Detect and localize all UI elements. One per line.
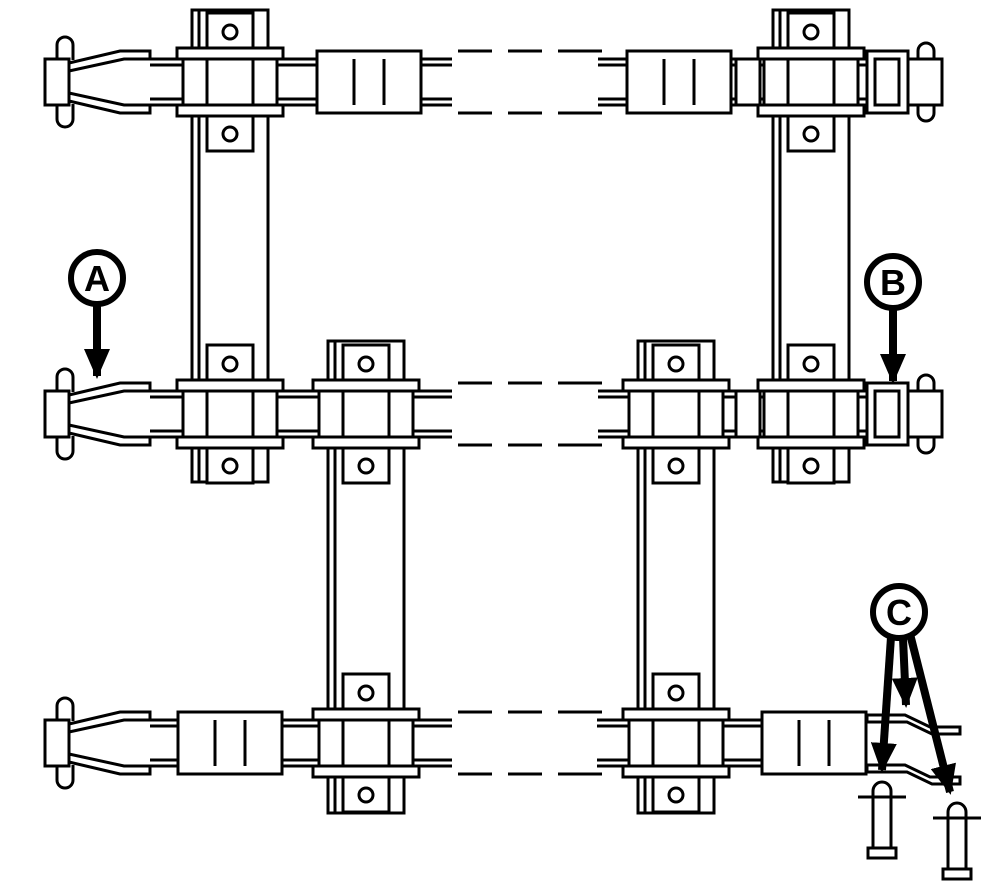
callout-c: C (873, 586, 950, 792)
connecting-link-right-end (867, 43, 942, 121)
callout-c-arrow-to-plate (903, 638, 906, 705)
chain-break (458, 51, 602, 113)
outer-link-plate (178, 712, 282, 774)
chain-roller (736, 59, 760, 105)
top-chain (45, 13, 942, 151)
connector-pin-1 (858, 782, 906, 858)
middle-chain (45, 345, 942, 483)
chain-break (458, 712, 602, 774)
outer-link-plate (317, 51, 421, 113)
chain-break (458, 383, 602, 445)
outer-link-plate-end (762, 712, 866, 774)
callout-a: A (71, 252, 123, 376)
connecting-link-right-end (867, 375, 942, 453)
callout-a-label: A (84, 258, 110, 299)
bottom-chain (45, 674, 867, 812)
chain-roller (736, 391, 760, 437)
callout-c-arrow-to-pin-2 (910, 634, 950, 792)
offset-link-left-end (45, 369, 150, 459)
callout-b: B (867, 256, 919, 381)
callout-b-label: B (880, 262, 906, 303)
chain-slat-assembly-diagram: A B C (0, 0, 992, 892)
callout-c-arrow-to-pin-1 (882, 637, 891, 770)
diagram-canvas: A B C (0, 0, 992, 892)
offset-link-left-end (45, 698, 150, 788)
offset-link-left-end (45, 37, 150, 127)
callout-c-label: C (886, 592, 912, 633)
outer-link-plate (627, 51, 731, 113)
connector-pin-2 (933, 803, 981, 879)
